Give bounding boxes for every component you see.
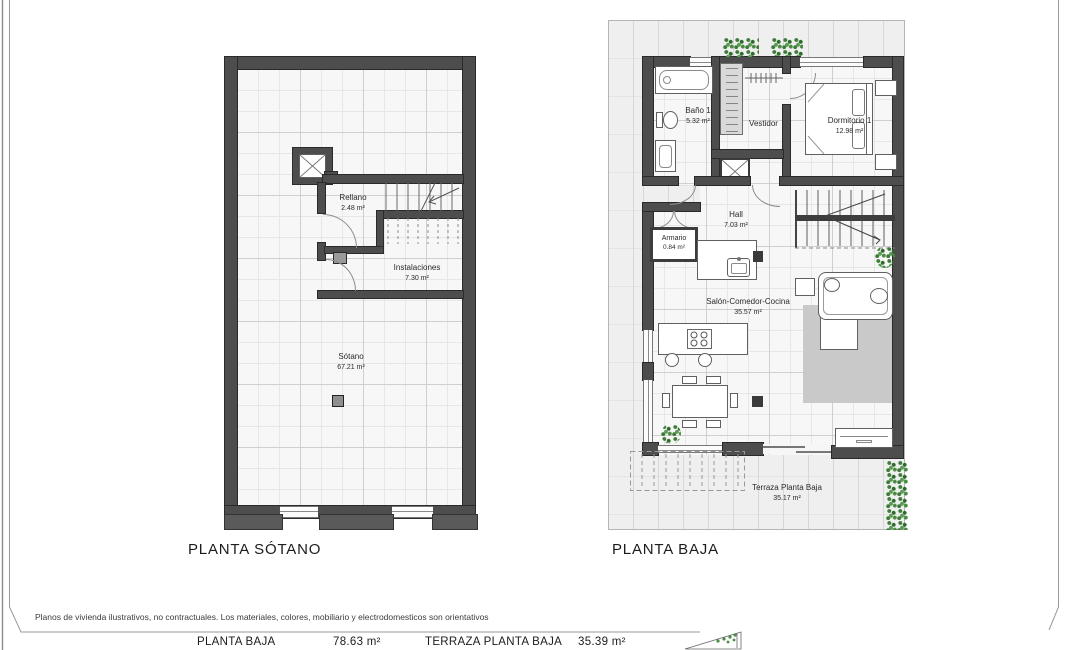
interior-wall [323, 175, 463, 183]
column-symbol [752, 396, 763, 407]
column-symbol [332, 395, 344, 407]
landscape-sketch-icon [684, 631, 742, 650]
chair-icon [682, 420, 697, 428]
wall-left [643, 57, 653, 185]
wall-left [643, 363, 653, 380]
chair-icon [706, 376, 721, 384]
bushes-icon [771, 37, 803, 56]
sotano-wall-top [225, 57, 475, 69]
column-symbol [753, 251, 763, 262]
tv-cabinet-line [840, 436, 888, 437]
elevator-shaft-icon [299, 154, 326, 178]
sofa-cushion [824, 278, 840, 292]
room-label-vestidor: Vestidor [736, 119, 791, 129]
pillow [852, 89, 865, 116]
bathtub-drain [663, 76, 671, 84]
hedge-icon [886, 460, 908, 530]
interior-wall [377, 211, 463, 218]
chair-icon [682, 376, 697, 384]
baja-floor-plan: Armario 0.84 m² [608, 20, 905, 530]
hob-icon [687, 329, 712, 349]
kitchen-sink-icon [727, 258, 750, 277]
interior-wall [643, 177, 678, 185]
side-table [795, 278, 815, 296]
plant-icon [661, 424, 681, 444]
tv-cabinet-handle [856, 440, 872, 443]
bedroom-window [800, 57, 864, 67]
sliding-door-leaf [763, 446, 805, 448]
plant-icon [875, 246, 895, 268]
sofa-cushion [870, 288, 888, 304]
room-label-instalaciones: Instalaciones 7.30 m² [375, 263, 459, 283]
footer-disclaimer: Planos de vivienda ilustrativos, no cont… [35, 612, 489, 622]
interior-wall [695, 177, 750, 185]
sotano-plan-title: PLANTA SÓTANO [188, 541, 321, 558]
kitchen-window [643, 330, 653, 363]
exterior-wall-chunk [320, 515, 393, 529]
room-label-sotano: Sótano 67.21 m² [317, 352, 385, 372]
nightstand-icon [875, 154, 897, 170]
room-label-dormitorio1: Dormitorio 1 12.98 m² [807, 116, 892, 136]
dining-table [672, 385, 728, 418]
exterior-wall-chunk [433, 515, 477, 529]
sliding-door-leaf [796, 451, 832, 453]
sotano-floor-plan: Rellano 2.48 m² Instalaciones 7.30 m² Só… [225, 57, 475, 518]
floor-plan-sheet: { "plans": { "sotano": { "title": "PLANT… [0, 0, 1070, 650]
sotano-wall-left [225, 57, 237, 506]
vestidor-bottom-wall [712, 150, 783, 158]
room-label-terraza: Terraza Planta Baja 35.17 m² [736, 483, 838, 503]
exterior-wall-chunk [225, 515, 282, 529]
room-label-salon: Salón-Comedor-Cocina 35.57 m² [692, 297, 804, 317]
sheet-frame-lines [0, 0, 1070, 650]
interior-wall [318, 291, 463, 298]
interior-wall [780, 177, 903, 185]
sink-basin [731, 263, 747, 274]
staircase-icon [795, 190, 895, 253]
baja-plan-title: PLANTA BAJA [612, 541, 719, 558]
hanging-rod-icon [745, 70, 783, 84]
summary-value-terraza: 35.39 m² [578, 636, 626, 648]
toilet-icon [656, 112, 663, 128]
armario-closet: Armario 0.84 m² [650, 227, 698, 262]
chair-icon [730, 393, 738, 408]
bushes-icon [723, 37, 759, 57]
bathtub-icon [655, 66, 713, 94]
basement-window [280, 506, 318, 518]
room-label-rellano: Rellano 2.48 m² [320, 193, 386, 213]
room-label-hall: Hall 7.03 m² [711, 210, 761, 230]
tv-cabinet [835, 428, 893, 448]
washbasin-icon [655, 140, 676, 172]
chair-icon [706, 420, 721, 428]
stool-icon [665, 353, 679, 367]
sink-tap [737, 257, 741, 261]
dining-window [643, 380, 653, 443]
nightstand-icon [875, 80, 897, 96]
vestidor-wall [783, 57, 790, 73]
pergola-dashed-area [630, 451, 745, 491]
stool-icon [698, 353, 712, 367]
summary-value-planta-baja: 78.63 m² [333, 636, 381, 648]
room-label-armario: Armario 0.84 m² [653, 234, 695, 253]
summary-label-planta-baja: PLANTA BAJA [197, 636, 276, 648]
basin-inner [659, 145, 672, 168]
stairs-upper-flight-icon [375, 183, 463, 211]
chair-icon [662, 393, 670, 408]
room-label-bano1: Baño 1 5.32 m² [675, 106, 721, 126]
vestidor-wall [783, 105, 790, 185]
summary-label-terraza: TERRAZA PLANTA BAJA [425, 636, 562, 648]
basement-window [392, 506, 433, 518]
stairs-lower-flight-icon [383, 218, 463, 244]
sotano-wall-right [463, 57, 475, 506]
